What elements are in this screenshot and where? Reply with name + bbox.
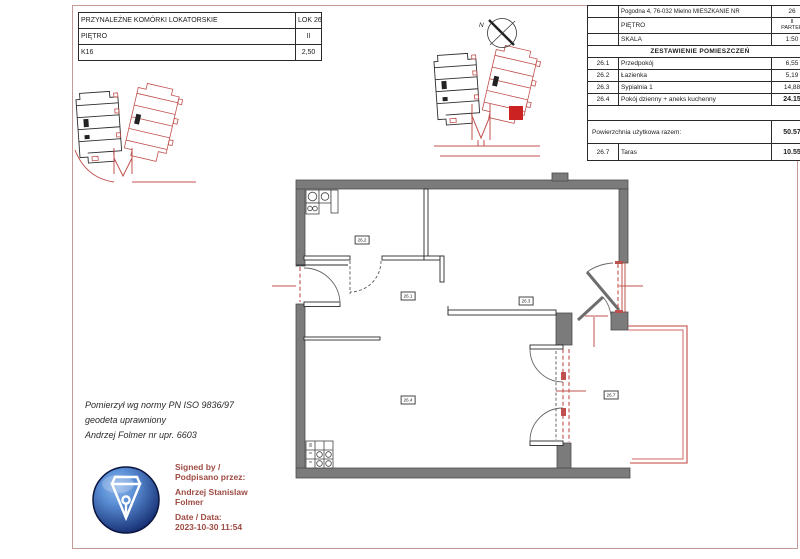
floor-value-cell: II PARTER — [772, 18, 800, 34]
apartment-number-cell: 26 — [772, 6, 800, 18]
storage-unit-id: K16 — [79, 45, 296, 61]
terrace-outline — [628, 326, 687, 463]
plan-sheet: N — [0, 0, 800, 559]
room-row: 26.2 Łazienka 5,19 — [588, 70, 800, 82]
signature-seal-icon — [82, 456, 172, 546]
surveyor-note: Pomierzył wg normy PN ISO 9836/97 geodet… — [85, 398, 234, 443]
table-row: PRZYNALEŻNE KOMÓRKI LOKATORSKIE LOK 26 — [79, 13, 322, 29]
total-value-cell: 50.57 — [772, 121, 800, 144]
surveyor-note-line: Andrzej Folmer nr upr. 6603 — [85, 428, 234, 443]
terrace-glass-doors — [530, 345, 586, 446]
total-label-cell: Powierzchnia użytkowa razem: — [588, 121, 772, 144]
signature-text: Signed by / Podpisano przez: Andrzej Sta… — [175, 463, 248, 532]
storage-floor-label: PIĘTRO — [79, 29, 296, 45]
signature-line: Podpisano przez: — [175, 473, 248, 483]
room-label-bathroom: 26.2 — [355, 236, 370, 245]
room-row: 26.3 Sypialnia 1 14,88 — [588, 82, 800, 94]
highlighted-unit-marker — [509, 106, 523, 120]
schedule-header-row: ZESTAWIENIE POMIESZCZEŃ — [588, 46, 800, 58]
room-label-bedroom: 26.3 — [519, 297, 534, 306]
bathroom-door-swing — [350, 261, 381, 294]
floor-plan — [272, 173, 687, 478]
total-row: Powierzchnia użytkowa razem: 50.57 — [588, 121, 800, 144]
compass-n-label: N — [479, 22, 484, 29]
terrace-row: 26.7 Taras 10.55 — [588, 144, 800, 161]
scale-label-cell: SKALA — [619, 34, 772, 46]
room-label-living: 26.4 — [401, 396, 416, 405]
floor-label-cell: PIĘTRO — [619, 18, 772, 34]
north-compass-icon: N — [479, 19, 517, 48]
address-row: Pogodna 4, 76-032 Mielno MIESZKANIE NR 2… — [588, 6, 800, 18]
site-plan-overview-1 — [75, 82, 196, 182]
scale-value-cell: 1:50 — [772, 34, 800, 46]
room-row: 26.1 Przedpokój 6,55 — [588, 58, 800, 70]
kitchen-fixtures-icon — [306, 441, 333, 468]
table-row: K16 2,50 — [79, 45, 322, 61]
room-schedule-table: Pogodna 4, 76-032 Mielno MIESZKANIE NR 2… — [587, 5, 800, 161]
signer-name: Folmer — [175, 498, 248, 508]
site-plan-overview-2 — [434, 44, 543, 156]
bedroom-door-swings — [578, 263, 619, 320]
surveyor-note-line: geodeta uprawniony — [85, 413, 234, 428]
entrance-door-swing — [272, 267, 340, 307]
address-cell: Pogodna 4, 76-032 Mielno MIESZKANIE NR — [619, 6, 772, 18]
floor-row: PIĘTRO II PARTER — [588, 18, 800, 34]
storage-lok-cell: LOK 26 — [296, 13, 322, 29]
storage-floor-value: II — [296, 29, 322, 45]
surveyor-note-line: Pomierzył wg normy PN ISO 9836/97 — [85, 398, 234, 413]
room-row: 26.4 Pokój dzienny + aneks kuchenny 24.1… — [588, 94, 800, 106]
storage-unit-area: 2,50 — [296, 45, 322, 61]
outer-walls — [296, 173, 630, 478]
storage-title-cell: PRZYNALEŻNE KOMÓRKI LOKATORSKIE — [79, 13, 296, 29]
bathroom-fixtures-icon — [306, 190, 338, 214]
table-row: PIĘTRO II — [79, 29, 322, 45]
room-label-terrace: 26.7 — [604, 391, 619, 400]
storage-unit-table: PRZYNALEŻNE KOMÓRKI LOKATORSKIE LOK 26 P… — [78, 12, 322, 61]
scale-row: SKALA 1:50 — [588, 34, 800, 46]
signature-date-value: 2023-10-30 11:54 — [175, 523, 248, 533]
spacer-row — [588, 106, 800, 121]
room-label-hall: 26.1 — [401, 292, 416, 301]
schedule-header: ZESTAWIENIE POMIESZCZEŃ — [588, 46, 800, 58]
